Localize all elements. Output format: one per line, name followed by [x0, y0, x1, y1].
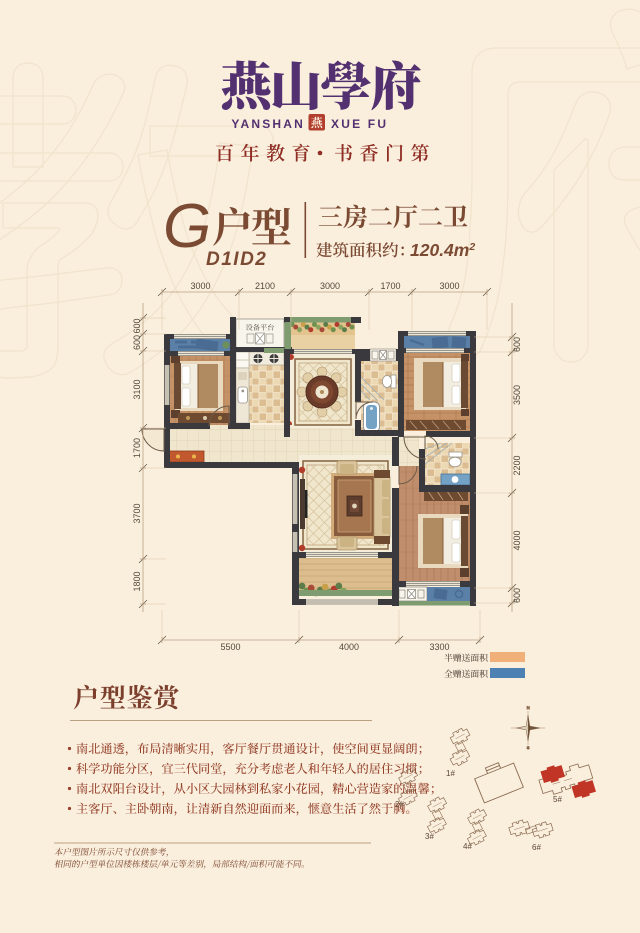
svg-text:120.4m2: 120.4m2: [410, 240, 475, 260]
svg-text:1700: 1700: [132, 438, 142, 458]
svg-text:3#: 3#: [425, 832, 434, 841]
svg-text:3700: 3700: [132, 503, 142, 523]
svg-text:1800: 1800: [132, 571, 142, 591]
svg-text:N: N: [527, 705, 530, 710]
svg-text:600: 600: [512, 337, 522, 352]
svg-text:4#: 4#: [463, 842, 472, 851]
svg-text:3100: 3100: [132, 379, 142, 399]
svg-text:5500: 5500: [220, 642, 240, 652]
svg-text:XUE FU: XUE FU: [331, 117, 388, 131]
svg-text:2#: 2#: [395, 800, 404, 809]
svg-text:1700: 1700: [380, 281, 400, 291]
svg-text:2100: 2100: [255, 281, 275, 291]
svg-text:4000: 4000: [512, 530, 522, 550]
svg-text:3000: 3000: [320, 281, 340, 291]
svg-text:1#: 1#: [446, 769, 455, 778]
svg-text:600: 600: [132, 335, 142, 350]
svg-text:3000: 3000: [190, 281, 210, 291]
svg-text:600: 600: [512, 588, 522, 603]
svg-text:2200: 2200: [512, 455, 522, 475]
svg-text:S: S: [527, 745, 530, 750]
svg-text:YANSHAN: YANSHAN: [231, 117, 305, 131]
svg-text:3000: 3000: [439, 281, 459, 291]
svg-text:G: G: [163, 192, 211, 261]
svg-text:6#: 6#: [532, 843, 541, 852]
svg-text:3300: 3300: [429, 642, 449, 652]
svg-text:4000: 4000: [339, 642, 359, 652]
svg-text:5#: 5#: [553, 795, 562, 804]
svg-text:3500: 3500: [512, 385, 522, 405]
svg-text:600: 600: [132, 318, 142, 333]
svg-text:D1ID2: D1ID2: [206, 249, 267, 270]
